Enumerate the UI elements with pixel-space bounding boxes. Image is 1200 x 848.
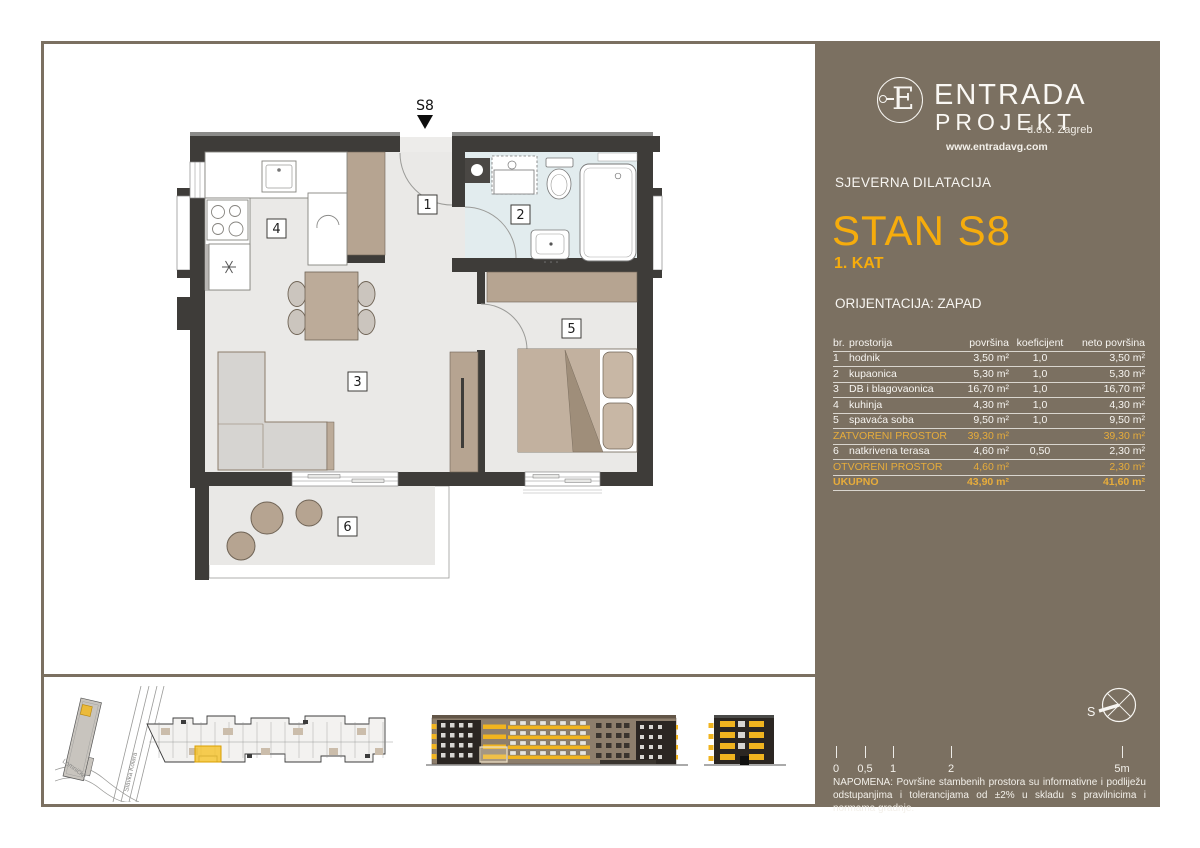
scale-label: 2 — [948, 763, 954, 775]
total-net: 39,30 m² — [1071, 431, 1145, 443]
table-row: 4 kuhinja 4,30 m² 1,0 4,30 m² — [833, 398, 1145, 414]
table-header-row: br. prostorija površina koeficijent neto… — [833, 336, 1145, 352]
header-area: površina — [951, 338, 1009, 350]
brand-name-line1: ENTRADA — [934, 79, 1087, 112]
end-elevation-windows — [738, 721, 745, 749]
row-net: 4,30 m² — [1071, 400, 1145, 412]
row-coef: 1,0 — [1011, 400, 1069, 412]
scale-label: 1 — [890, 763, 896, 775]
scale-tick — [893, 746, 894, 758]
elevation-end — [704, 710, 786, 770]
compass-icon: S — [1077, 679, 1153, 737]
row-num: 6 — [833, 446, 847, 458]
row-net: 5,30 m² — [1071, 369, 1145, 381]
row-coef: 1,0 — [1011, 353, 1069, 365]
footer-divider — [42, 674, 817, 677]
brand-monogram: E — [892, 81, 915, 117]
header-room: prostorija — [849, 338, 949, 350]
scale-label: 0,5 — [857, 763, 872, 775]
section-title: SJEVERNA DILATACIJA — [835, 175, 991, 190]
window-bedroom — [523, 472, 602, 493]
window-livingroom — [292, 472, 398, 486]
compass-north-label: S — [1087, 705, 1095, 719]
row-num: 1 — [833, 353, 847, 365]
orientation-label: ORIJENTACIJA: ZAPAD — [835, 296, 982, 311]
table-row: 1 hodnik 3,50 m² 1,0 3,50 m² — [833, 352, 1145, 368]
row-area: 16,70 m² — [951, 384, 1009, 396]
site-unit-highlight — [80, 705, 92, 717]
window-kitchen — [190, 162, 205, 198]
row-name: natkrivena terasa — [849, 446, 949, 458]
row-name: DB i blagovaonica — [849, 384, 949, 396]
scale-label: 0 — [833, 763, 839, 775]
header-net: neto površina — [1071, 338, 1145, 350]
row-name: kuhinja — [849, 400, 949, 412]
scale-tick — [1122, 746, 1123, 758]
total-name: UKUPNO — [833, 477, 949, 489]
row-num: 4 — [833, 400, 847, 412]
row-name: hodnik — [849, 353, 949, 365]
total-area: 43,90 m² — [951, 477, 1009, 489]
room-label-living: 3 — [353, 375, 361, 390]
row-net: 9,50 m² — [1071, 415, 1145, 427]
entrance-marker: S8 — [416, 98, 434, 129]
room-label-bedroom: 5 — [567, 322, 575, 337]
grand-total-row: UKUPNO 43,90 m² 41,60 m² — [833, 476, 1145, 492]
open-total-row: OTVORENI PROSTOR 4,60 m² 2,30 m² — [833, 460, 1145, 476]
total-name: OTVORENI PROSTOR — [833, 462, 949, 474]
key-plan-unit-highlight — [195, 746, 221, 762]
disclaimer-note: NAPOMENA: Površine stambenih prostora su… — [833, 777, 1146, 815]
table-row: 5 spavaća soba 9,50 m² 1,0 9,50 m² — [833, 414, 1145, 430]
info-panel: E ENTRADA PROJEKT d.o.o. Zagreb www.entr… — [815, 41, 1160, 807]
room-label-hallway: 1 — [423, 198, 431, 213]
entrance-arrow-icon — [417, 115, 433, 129]
row-net: 3,50 m² — [1071, 353, 1145, 365]
scale-tick — [836, 746, 837, 758]
row-coef: 1,0 — [1011, 415, 1069, 427]
unit-title: STAN S8 — [832, 207, 1011, 255]
plan-sheet: S8 1 2 3 4 5 6 — [0, 0, 1200, 848]
floor-label: 1. KAT — [834, 255, 883, 273]
building-key-plan — [143, 706, 399, 776]
row-num: 3 — [833, 384, 847, 396]
brand-suffix: d.o.o. Zagreb — [1027, 124, 1092, 136]
scale-label: 5m — [1114, 763, 1129, 775]
total-net: 41,60 m² — [1071, 477, 1145, 489]
room-label-kitchen: 4 — [272, 222, 280, 237]
total-name: ZATVORENI PROSTOR — [833, 431, 949, 443]
total-area: 39,30 m² — [951, 431, 1009, 443]
row-name: spavaća soba — [849, 415, 949, 427]
room-label-terrace: 6 — [343, 520, 351, 535]
row-area: 3,50 m² — [951, 353, 1009, 365]
table-row: 2 kupaonica 5,30 m² 1,0 5,30 m² — [833, 367, 1145, 383]
row-net: 16,70 m² — [1071, 384, 1145, 396]
table-row: 3 DB i blagovaonica 16,70 m² 1,0 16,70 m… — [833, 383, 1145, 399]
row-num: 5 — [833, 415, 847, 427]
row-area: 5,30 m² — [951, 369, 1009, 381]
row-area: 4,30 m² — [951, 400, 1009, 412]
scale-tick — [865, 746, 866, 758]
hall-closet — [347, 152, 385, 255]
header-coef: koeficijent — [1011, 338, 1069, 350]
total-net: 2,30 m² — [1071, 462, 1145, 474]
row-num: 2 — [833, 369, 847, 381]
brand-logo: E — [877, 77, 923, 123]
row-net: 2,30 m² — [1071, 446, 1145, 458]
row-name: kupaonica — [849, 369, 949, 381]
row-coef: 0,50 — [1011, 446, 1069, 458]
floor-plan: S8 1 2 3 4 5 6 — [42, 42, 815, 674]
area-table: br. prostorija površina koeficijent neto… — [833, 336, 1145, 491]
row-area: 9,50 m² — [951, 415, 1009, 427]
row-area: 4,60 m² — [951, 446, 1009, 458]
room-label-bathroom: 2 — [516, 208, 524, 223]
terrace-row: 6 natkrivena terasa 4,60 m² 0,50 2,30 m² — [833, 445, 1145, 461]
unit-marker-label: S8 — [416, 98, 434, 114]
row-coef: 1,0 — [1011, 384, 1069, 396]
header-num: br. — [833, 338, 847, 350]
elevation-long — [424, 708, 690, 772]
scale-tick — [951, 746, 952, 758]
brand-website: www.entradavg.com — [946, 141, 1048, 153]
elevation-unit-highlight — [480, 747, 507, 762]
row-coef: 1,0 — [1011, 369, 1069, 381]
bedroom-top-closet — [487, 272, 637, 302]
closed-total-row: ZATVORENI PROSTOR 39,30 m² 39,30 m² — [833, 429, 1145, 445]
total-area: 4,60 m² — [951, 462, 1009, 474]
